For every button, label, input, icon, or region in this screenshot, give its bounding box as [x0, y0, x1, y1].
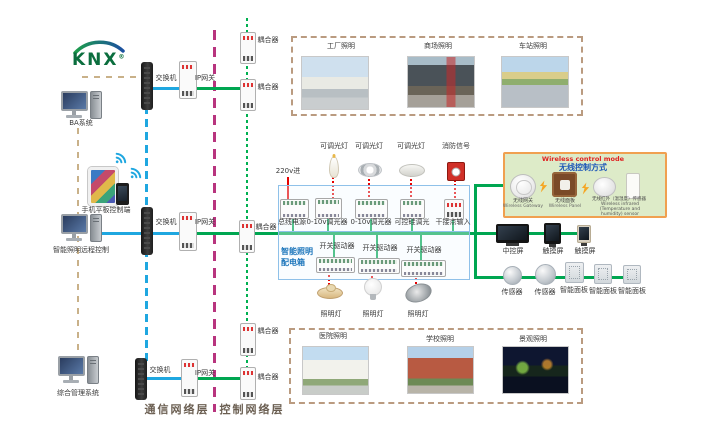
monitor-icon: [58, 356, 85, 376]
wifi-icon: [112, 151, 128, 167]
switch-gateway-link-top: [150, 87, 182, 90]
wireless-sensor-label-en: Wireless infrared (Temperature and humid…: [591, 203, 649, 218]
lamp-label: 照明灯: [363, 311, 384, 318]
coupler-label: 耦合器: [258, 328, 279, 335]
ba-system-computer: [61, 91, 101, 121]
sensor-label: 传感器: [502, 289, 523, 296]
scene-photo-hospital: [302, 346, 369, 395]
switch-label: 交换机: [156, 75, 177, 82]
dimmable-lamp-label: 可调光灯: [397, 143, 425, 150]
smart-panel-label: 智能面板: [618, 288, 646, 295]
scene-photo-school: [407, 346, 474, 394]
dimmable-ceiling-lamp-icon: [399, 164, 425, 177]
wireless-panel-icon: [552, 172, 577, 197]
coupler-device: [240, 323, 256, 356]
scene-photo-mall: [407, 56, 475, 108]
triac-dimmer-label: 可控硅调光: [395, 219, 430, 226]
wireless-infrared-sensor-icon: [593, 177, 616, 197]
dry-contact-label: 干接点输入: [436, 219, 471, 226]
dimmer-label: 0-10v调光器: [350, 219, 391, 226]
coupler-label: 耦合器: [258, 37, 279, 44]
pc-switch-link-mid: [93, 232, 182, 235]
coupler-label: 耦合器: [258, 84, 279, 91]
control-layer-label: 控制网络层: [220, 401, 285, 417]
knx-logo-text: KNX: [72, 50, 119, 70]
scene-photo-factory: [301, 56, 369, 110]
smart-panel-label: 智能面板: [560, 287, 588, 294]
fire-signal-label: 消防信号: [442, 143, 470, 150]
sensor-row-line: [474, 276, 638, 279]
switch-actuator-module: [316, 257, 355, 273]
management-bus-stub: [82, 76, 142, 78]
switch-actuator-label: 开关驱动器: [363, 245, 398, 252]
dimmer-module: [355, 199, 388, 219]
touch-screen-device: [544, 223, 561, 244]
coupler-device: [239, 220, 255, 253]
diagram-canvas: KNX® BA系统 手机平板控制端 智能照明远程控制 综合管理系统 交换机 交换…: [0, 0, 715, 443]
dimmer-module: [315, 198, 342, 219]
scene-label-mall: 商场照明: [424, 43, 452, 50]
ip-gateway-label: IP网关: [195, 370, 215, 377]
monitor-icon: [61, 214, 88, 234]
remote-control-label: 智能照明远程控制: [53, 247, 109, 254]
gateway-coupler-link-bottom: [193, 377, 245, 380]
smart-panel-label: 智能面板: [589, 288, 617, 295]
ip-gateway-label: IP网关: [195, 75, 215, 82]
monitor-icon: [61, 91, 88, 111]
mobile-control-label: 手机平板控制端: [82, 207, 131, 214]
lamp-label: 照明灯: [321, 311, 342, 318]
wireless-panel-label-en: Wireless Panel: [549, 205, 581, 210]
wireless-branch-line: [474, 184, 504, 187]
tablet-device: [88, 167, 118, 206]
scene-label-school: 学校照明: [426, 336, 454, 343]
lamp-label: 照明灯: [408, 311, 429, 318]
pc-tower-icon: [90, 214, 102, 242]
lamp-icon: [403, 280, 434, 305]
fire-alarm-icon: [447, 162, 465, 181]
panel-title-line1: 智能照明: [281, 247, 313, 257]
touch-screen-device: [577, 225, 591, 243]
power-in-label: 220v进: [276, 168, 301, 175]
panel-title-line2: 配电箱: [281, 258, 305, 268]
lamp-icon: [364, 278, 382, 296]
pc-tower-icon: [87, 356, 99, 384]
coupler-device: [240, 367, 256, 400]
dimmable-lamp-label: 可调光灯: [355, 143, 383, 150]
smart-panel-device: [565, 262, 584, 283]
coupler-device: [240, 79, 256, 111]
ip-gateway-label: IP网关: [195, 219, 215, 226]
registered-mark: ®: [119, 53, 127, 60]
dimmable-downlight-icon: [358, 163, 382, 177]
central-screen-label: 中控屏: [503, 248, 524, 255]
wireless-gateway-label-en: Wireless Gateway: [503, 205, 543, 210]
knx-logo: KNX®: [72, 38, 130, 70]
smart-panel-device: [594, 264, 612, 284]
pc-tower-icon: [90, 91, 102, 119]
coupler-device: [240, 32, 256, 64]
wireless-gateway-icon: [510, 174, 536, 199]
touch-screen-label: 触摸屏: [543, 248, 564, 255]
sensor-label: 传感器: [535, 289, 556, 296]
scene-photo-station: [501, 56, 569, 108]
sensor-device: [503, 266, 522, 285]
sensor-device: [535, 264, 556, 285]
dimmable-lamp-label: 可调光灯: [320, 143, 348, 150]
scene-label-landscape: 景观照明: [519, 336, 547, 343]
switch-label: 交换机: [150, 367, 171, 374]
communication-layer-label: 通信网络层: [145, 401, 210, 417]
scene-photo-landscape: [502, 346, 569, 394]
gateway-coupler-link-top: [193, 87, 245, 90]
lightning-icon: [538, 180, 549, 193]
remote-control-computer: [61, 214, 101, 244]
coupler-label: 耦合器: [258, 374, 279, 381]
bus-power-module: [280, 199, 309, 219]
switch-actuator-module: [358, 258, 400, 274]
management-computer: [58, 356, 98, 386]
ba-system-label: BA系统: [69, 120, 93, 127]
switch-actuator-module: [401, 260, 446, 277]
phone-device: [116, 183, 129, 205]
dimmer-label: 0-10v调光器: [306, 219, 347, 226]
switch-actuator-label: 开关驱动器: [407, 247, 442, 254]
scene-label-factory: 工厂照明: [327, 43, 355, 50]
wifi-icon: [127, 166, 143, 182]
scene-label-hospital: 医院照明: [319, 333, 347, 340]
management-label: 综合管理系统: [57, 390, 99, 397]
triac-dimmer-module: [400, 199, 425, 219]
ethernet-switch-device: [141, 62, 153, 110]
wireless-humidity-sensor-icon: [626, 173, 640, 199]
scene-label-station: 车站照明: [519, 43, 547, 50]
right-branch-vertical: [474, 184, 477, 279]
dimmable-lamp-icon: [329, 156, 339, 178]
ethernet-switch-device: [135, 358, 147, 400]
ethernet-switch-device: [141, 207, 153, 255]
coupler-label: 耦合器: [256, 224, 277, 231]
switch-label: 交换机: [156, 219, 177, 226]
touch-screen-label: 触摸屏: [575, 248, 596, 255]
lamp-icon: [317, 287, 343, 299]
ip-gateway-device: [181, 359, 198, 397]
bus-power-label: 总线电源: [278, 219, 306, 226]
switch-actuator-label: 开关驱动器: [320, 243, 355, 250]
central-screen-device: [496, 224, 529, 243]
smart-panel-device: [623, 265, 641, 284]
dry-contact-module: [444, 199, 464, 220]
lightning-icon: [580, 182, 591, 195]
switch-gateway-link-bottom: [144, 377, 182, 380]
